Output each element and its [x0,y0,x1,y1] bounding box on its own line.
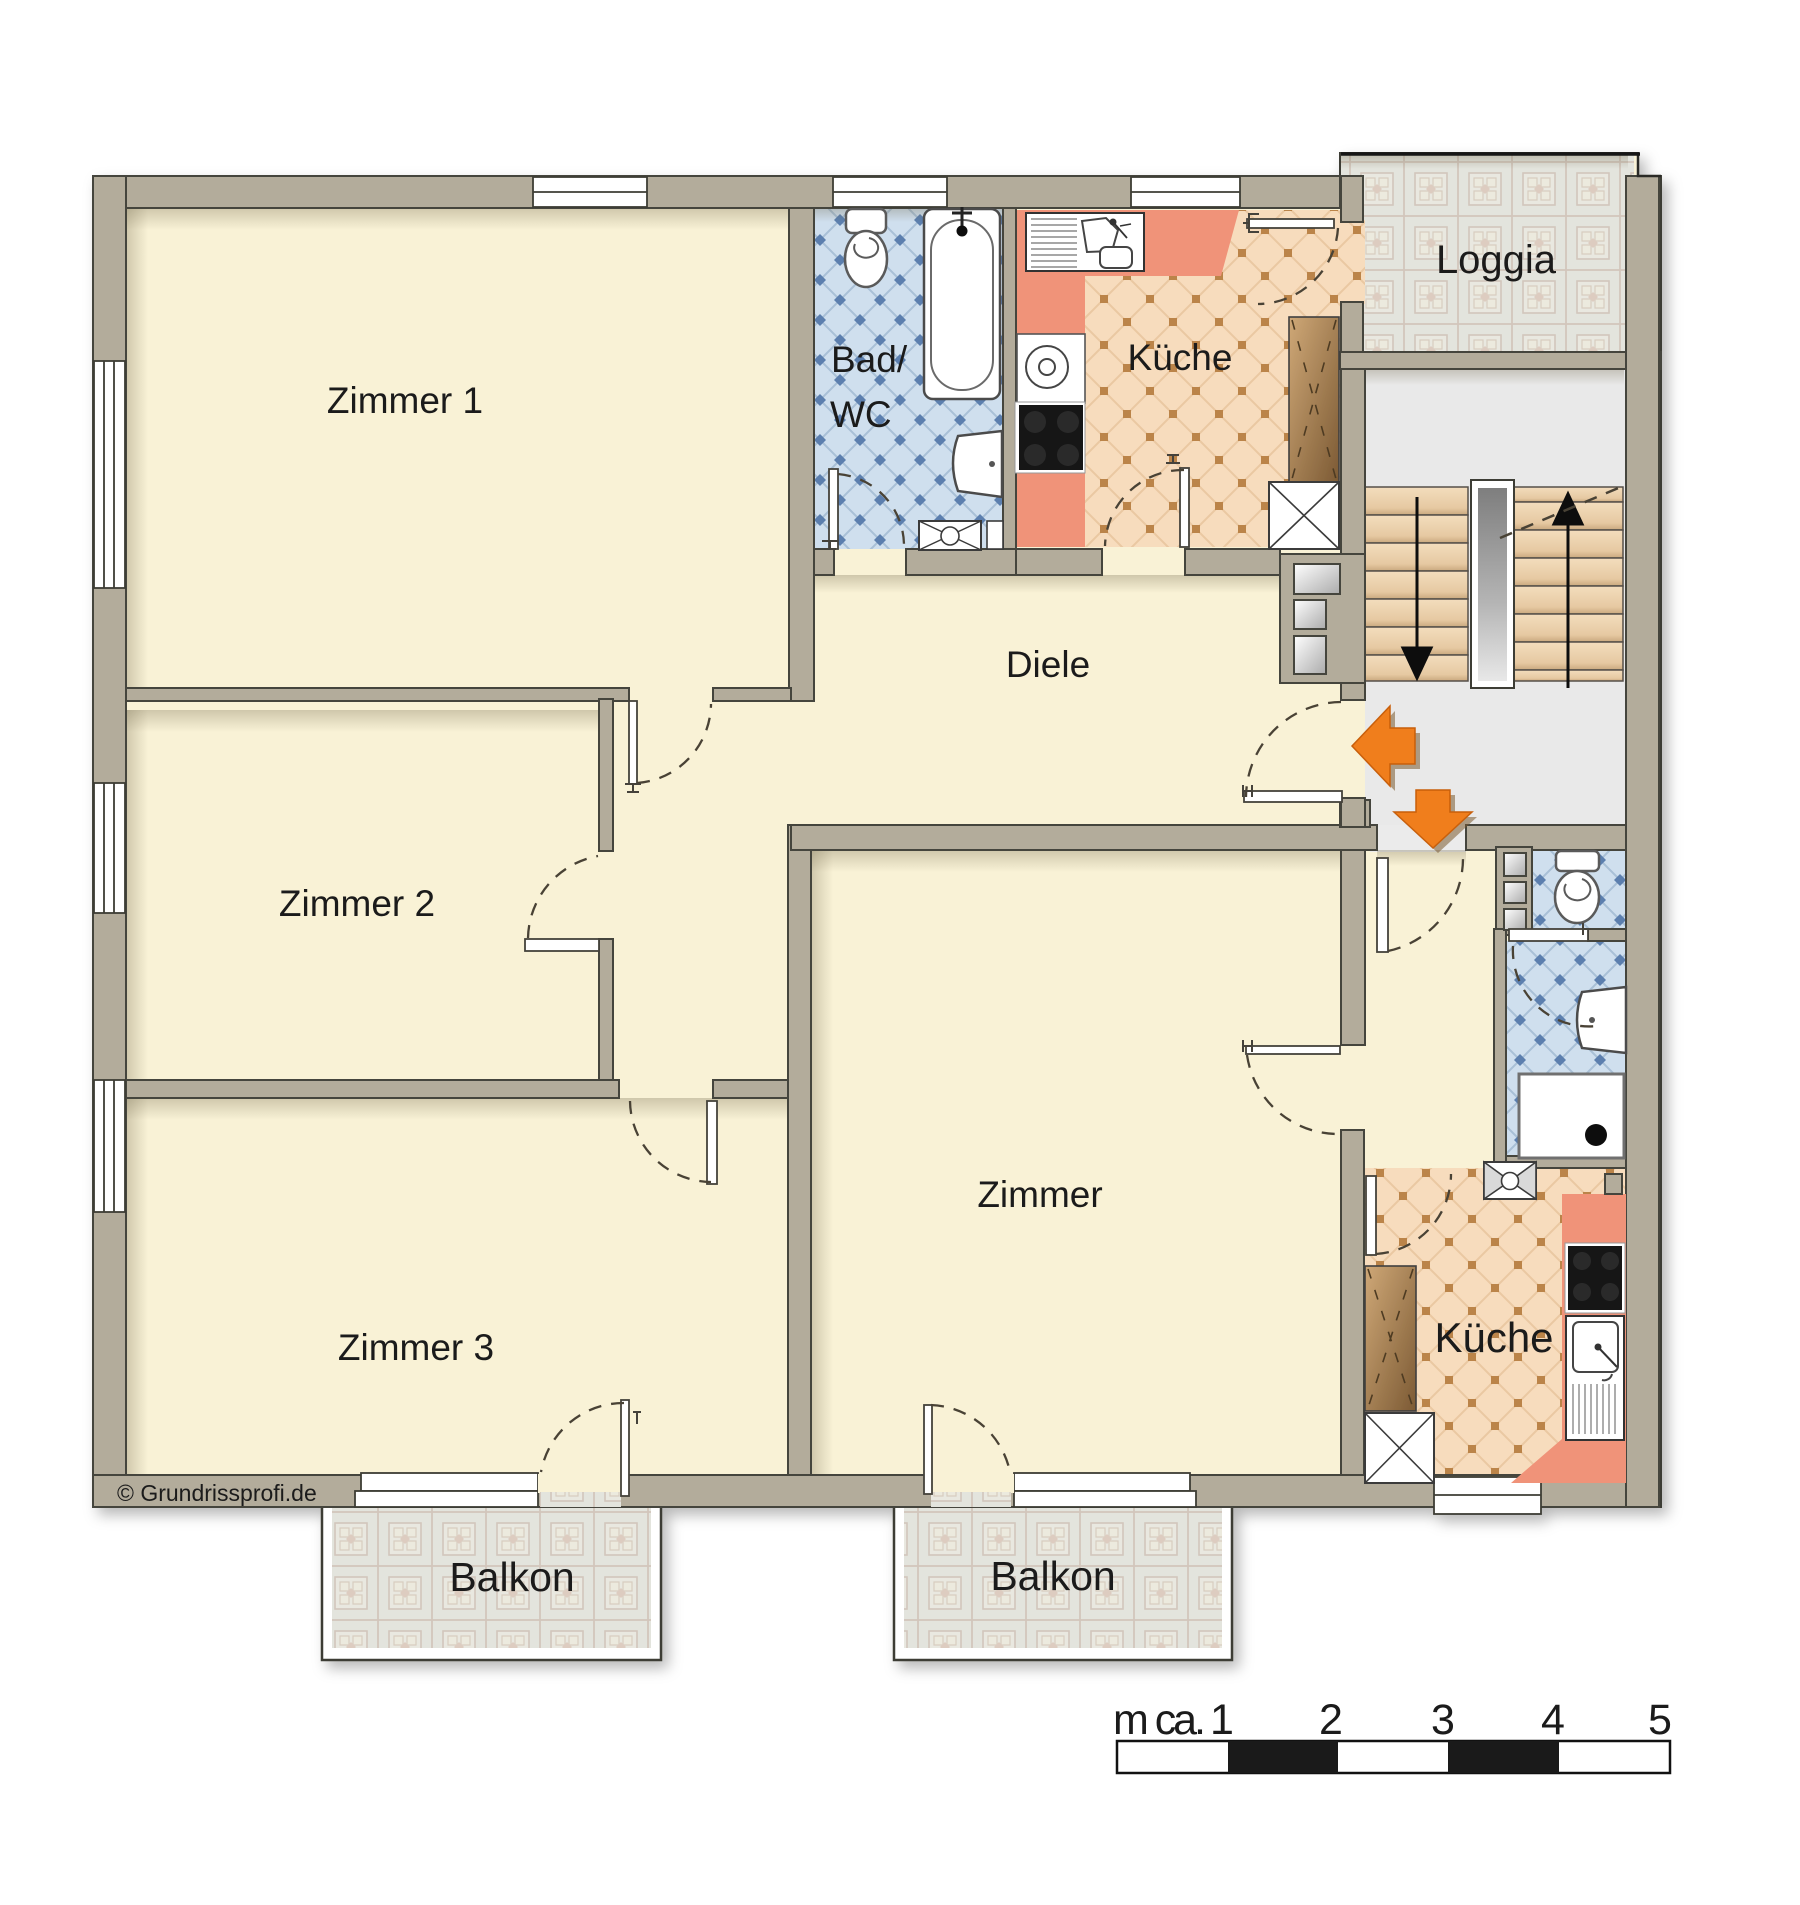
svg-text:Balkon: Balkon [449,1554,574,1600]
svg-text:WC: WC [830,394,892,435]
svg-text:4: 4 [1541,1696,1565,1744]
svg-text:1: 1 [1210,1696,1234,1744]
svg-text:Zimmer 1: Zimmer 1 [327,380,483,421]
svg-text:m ca.: m ca. [1113,1696,1206,1744]
svg-text:Balkon: Balkon [990,1553,1115,1599]
svg-text:Zimmer 2: Zimmer 2 [279,883,435,924]
svg-text:Zimmer 3: Zimmer 3 [338,1327,494,1368]
svg-text:Küche: Küche [1434,1314,1553,1361]
svg-text:3: 3 [1431,1696,1455,1744]
svg-text:Loggia: Loggia [1436,238,1557,282]
svg-text:© Grundrissprofi.de: © Grundrissprofi.de [117,1480,317,1506]
svg-text:Diele: Diele [1006,644,1090,685]
svg-text:Bad/: Bad/ [831,339,908,380]
svg-text:2: 2 [1319,1696,1343,1744]
svg-text:5: 5 [1648,1696,1672,1744]
svg-text:Küche: Küche [1128,337,1233,378]
svg-text:Zimmer: Zimmer [977,1174,1102,1215]
